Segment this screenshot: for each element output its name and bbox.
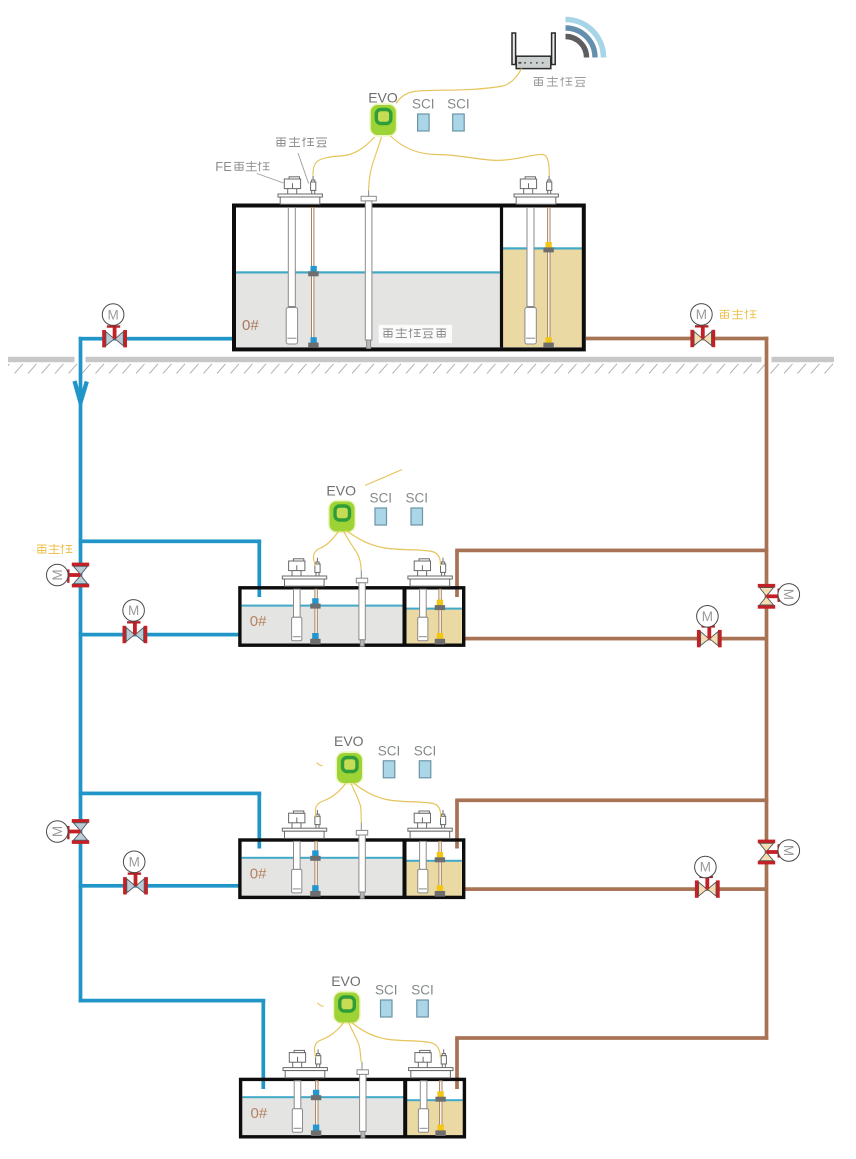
- svg-text:EVO: EVO: [334, 733, 364, 749]
- svg-text:0#: 0#: [242, 317, 259, 334]
- svg-text:SCI: SCI: [412, 97, 435, 112]
- svg-text:SCI: SCI: [369, 491, 392, 506]
- svg-text:SCI: SCI: [378, 743, 401, 758]
- svg-text:SCI: SCI: [414, 743, 437, 758]
- svg-text:SCI: SCI: [375, 983, 398, 998]
- svg-text:EVO: EVO: [326, 483, 356, 499]
- svg-text:EVO: EVO: [331, 973, 361, 989]
- svg-text:EVO: EVO: [368, 89, 398, 105]
- svg-text:SCI: SCI: [411, 983, 434, 998]
- svg-text:SCI: SCI: [447, 97, 470, 112]
- svg-text:FE: FE: [215, 159, 232, 174]
- svg-text:SCI: SCI: [405, 491, 428, 506]
